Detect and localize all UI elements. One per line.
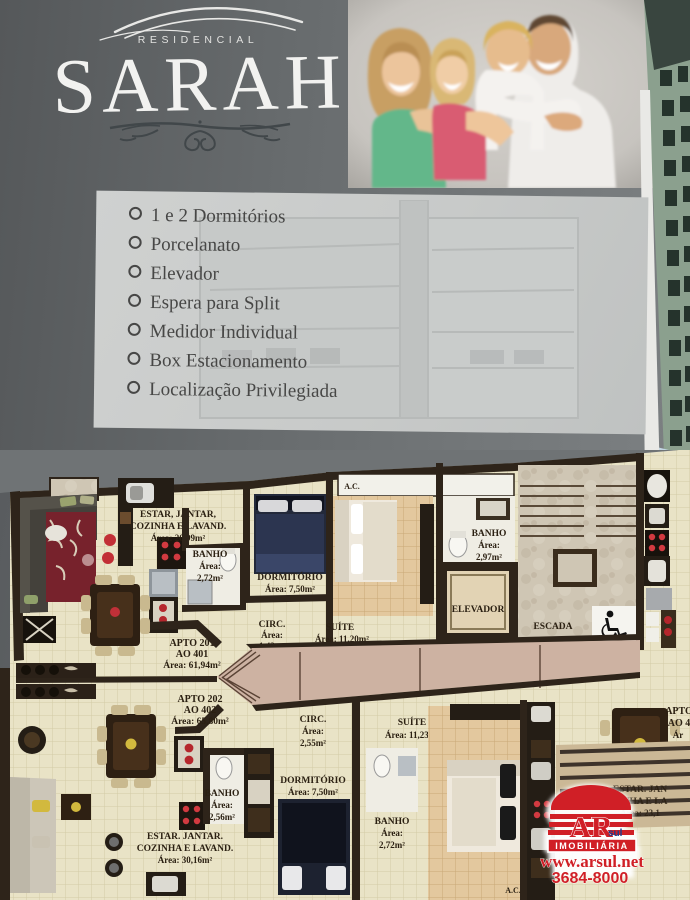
svg-text:2,97m²: 2,97m² (476, 552, 502, 562)
svg-text:3684-8000: 3684-8000 (552, 870, 629, 885)
svg-text:ELEVADOR: ELEVADOR (452, 605, 505, 615)
svg-text:2,55m²: 2,55m² (300, 738, 326, 748)
svg-text:Área: 26,99m²: Área: 26,99m² (151, 533, 206, 543)
svg-text:Área: 61,94m²: Área: 61,94m² (163, 659, 221, 671)
svg-text:ESTAR. JANTAR.: ESTAR. JANTAR. (147, 832, 223, 842)
svg-text:BANHO: BANHO (193, 550, 228, 560)
svg-text:BANHO: BANHO (472, 529, 507, 539)
svg-text:COZINHA E LAVAND.: COZINHA E LAVAND. (130, 522, 227, 532)
svg-text:COZINHA E LAVAND.: COZINHA E LAVAND. (137, 844, 234, 854)
svg-text:2,72m²: 2,72m² (197, 573, 223, 583)
svg-text:Área: 7,50m²: Área: 7,50m² (265, 584, 315, 594)
svg-text:Área:: Área: (381, 828, 403, 838)
svg-text:Área:: Área: (211, 800, 233, 810)
svg-text:CIRC.: CIRC. (300, 715, 327, 725)
svg-text:Área:: Área: (302, 726, 324, 736)
svg-text:Ár: Ár (673, 730, 684, 740)
svg-text:BANHO: BANHO (205, 789, 240, 799)
svg-text:SUÍTE: SUÍTE (326, 621, 355, 633)
svg-text:A.C.: A.C. (505, 886, 521, 895)
svg-text:A.C.: A.C. (344, 482, 360, 491)
svg-text:ESCADA: ESCADA (533, 622, 572, 632)
svg-text:sul: sul (608, 828, 623, 839)
svg-text:APTO 202: APTO 202 (177, 694, 222, 705)
svg-text:BANHO: BANHO (375, 817, 410, 827)
svg-text:2,56m²: 2,56m² (209, 812, 235, 822)
svg-text:ESTAR, JANTAR,: ESTAR, JANTAR, (140, 510, 217, 520)
svg-text:Área:: Área: (478, 540, 500, 550)
svg-text:Área: 65,80m²: Área: 65,80m² (171, 715, 229, 727)
svg-text:APTO: APTO (665, 706, 690, 717)
svg-text:SARAH: SARAH (52, 37, 348, 129)
svg-text:CIRC.: CIRC. (259, 620, 286, 630)
svg-text:AO 401: AO 401 (176, 649, 209, 660)
svg-text:IMOBILIÁRIA: IMOBILIÁRIA (555, 841, 629, 851)
svg-text:DORMITÓRIO: DORMITÓRIO (257, 571, 322, 583)
svg-text:AO 402: AO 402 (184, 705, 217, 716)
svg-text:AO 4: AO 4 (668, 718, 690, 729)
svg-text:SUÍTE: SUÍTE (398, 716, 427, 728)
svg-text:Área: 7,50m²: Área: 7,50m² (288, 787, 338, 797)
svg-text:Área: 30,16m²: Área: 30,16m² (158, 855, 213, 865)
svg-text:2,72m²: 2,72m² (379, 840, 405, 850)
svg-text:www.arsul.net: www.arsul.net (540, 852, 644, 871)
svg-text:Área:: Área: (199, 561, 221, 571)
svg-text:DORMITÓRIO: DORMITÓRIO (280, 774, 345, 786)
svg-text:Área:: Área: (261, 630, 283, 640)
